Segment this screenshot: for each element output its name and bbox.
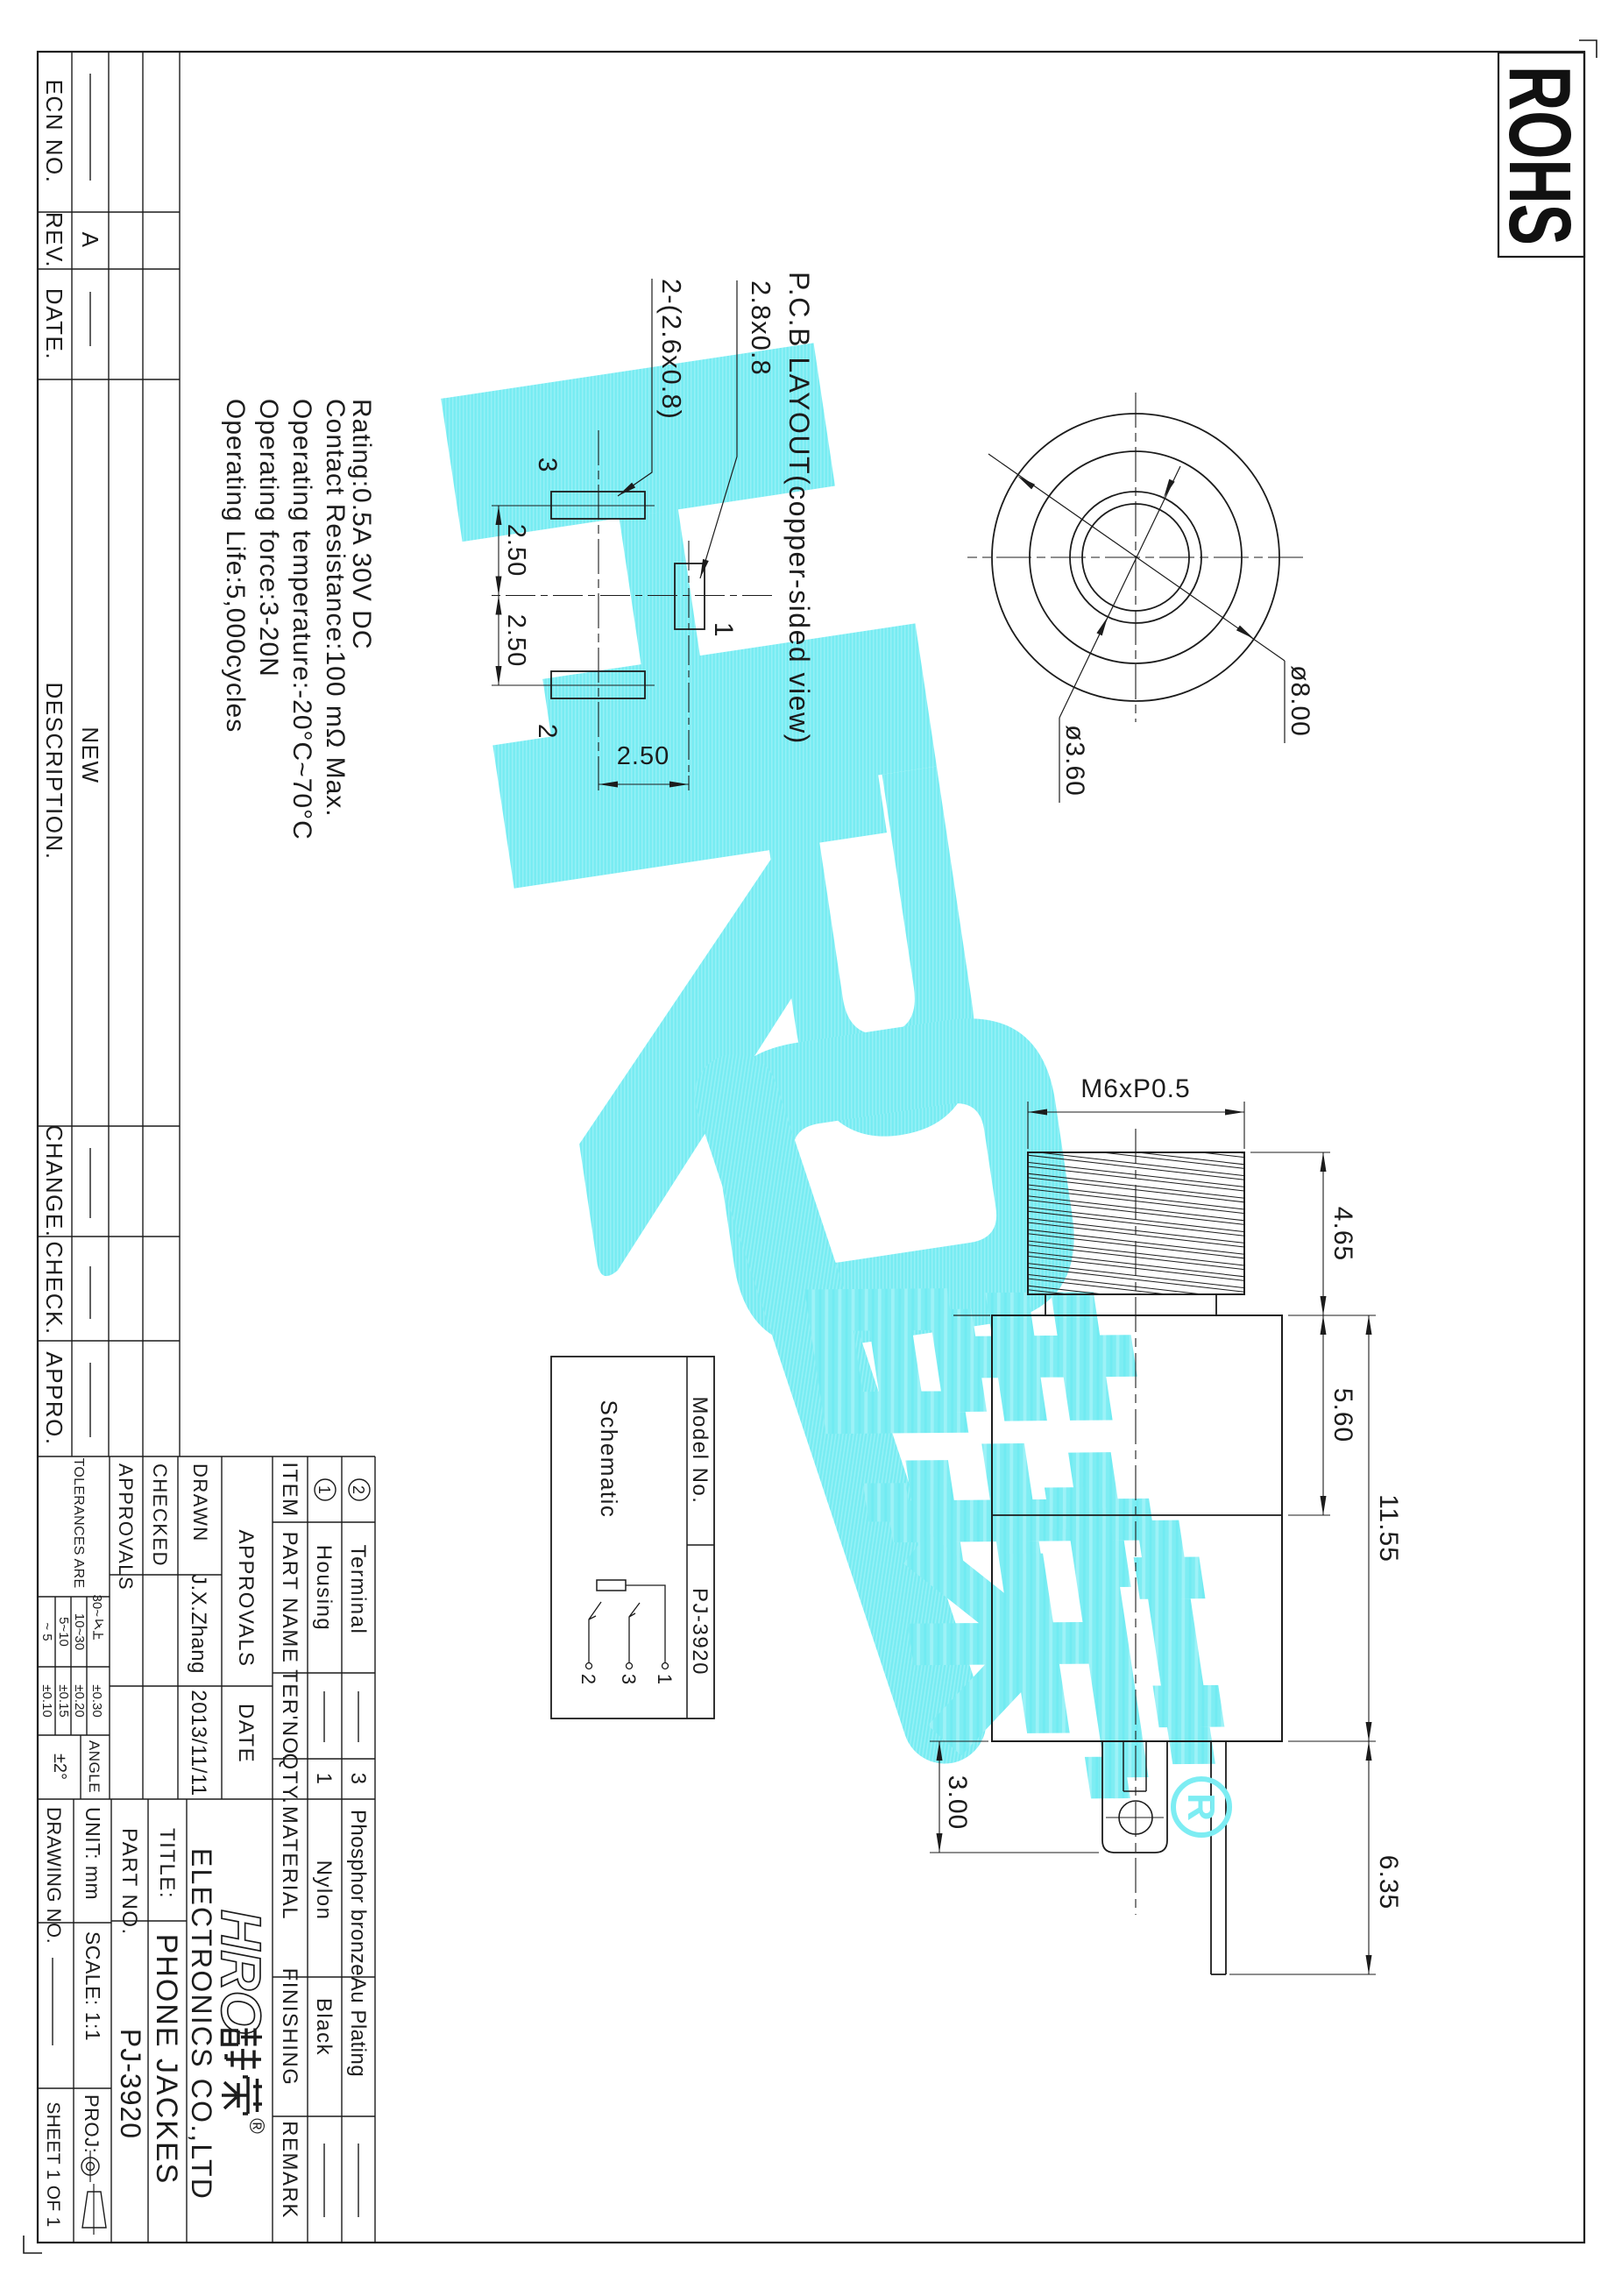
svg-text:P.C.B LAYOUT(copper-sided vi: P.C.B LAYOUT(copper-sided view): [783, 272, 815, 745]
svg-text:3: 3: [346, 1773, 370, 1786]
svg-text:REV.: REV.: [41, 212, 67, 268]
svg-text:3.00: 3.00: [943, 1775, 972, 1830]
svg-text:®: ®: [244, 2118, 268, 2134]
svg-text:SHEET 1 OF 1: SHEET 1 OF 1: [43, 2101, 63, 2227]
svg-text:ECN NO.: ECN NO.: [41, 80, 67, 184]
svg-text:5.60: 5.60: [1328, 1388, 1357, 1442]
svg-text:APPRO.: APPRO.: [41, 1351, 67, 1445]
svg-text:11.55: 11.55: [1374, 1494, 1403, 1563]
svg-text:Au Plating: Au Plating: [346, 1977, 370, 2077]
svg-text:PJ-3920: PJ-3920: [688, 1588, 712, 1676]
svg-text:TER'NO.: TER'NO.: [278, 1669, 301, 1762]
svg-text:PART NO.: PART NO.: [117, 1828, 141, 1936]
svg-text:DATE.: DATE.: [41, 288, 67, 360]
svg-text:2: 2: [533, 724, 562, 740]
svg-text:APPROVALS: APPROVALS: [234, 1529, 258, 1667]
svg-text:2-(2.6x0.8): 2-(2.6x0.8): [656, 279, 687, 420]
svg-text:10~30: 10~30: [72, 1613, 87, 1650]
svg-text:DESCRIPTION.: DESCRIPTION.: [41, 683, 67, 861]
svg-text:CHECK.: CHECK.: [41, 1241, 67, 1335]
svg-text:PHONE JACKES: PHONE JACKES: [150, 1934, 183, 2186]
svg-text:Contact Resistance:100 mΩ M: Contact Resistance:100 mΩ Max.: [321, 399, 350, 818]
svg-text:2.50: 2.50: [617, 742, 669, 770]
svg-text:2.50: 2.50: [502, 524, 530, 577]
svg-text:TITLE:: TITLE:: [155, 1828, 179, 1899]
svg-text:5~10: 5~10: [56, 1617, 71, 1647]
svg-text:Operating temperature:-20°C~7: Operating temperature:-20°C~70°C: [287, 399, 316, 840]
svg-text:30~: 30~: [89, 1595, 104, 1618]
svg-text:SCALE: 1:1: SCALE: 1:1: [81, 1931, 104, 2041]
svg-text:2: 2: [350, 1485, 367, 1494]
svg-text:±0.10: ±0.10: [39, 1684, 54, 1717]
svg-text:TOLERANCES ARE: TOLERANCES ARE: [71, 1458, 86, 1589]
svg-text:3: 3: [533, 457, 562, 473]
svg-text:DRAWN: DRAWN: [189, 1463, 211, 1542]
svg-text:Operating Life:5,000cycles: Operating Life:5,000cycles: [221, 399, 250, 733]
svg-text:Rating:0.5A 30V DC: Rating:0.5A 30V DC: [347, 399, 376, 650]
svg-text:±0.15: ±0.15: [56, 1684, 71, 1717]
svg-text:2: 2: [577, 1674, 599, 1684]
svg-text:Phosphor bronze: Phosphor bronze: [346, 1810, 370, 1976]
svg-text:M6xP0.5: M6xP0.5: [1080, 1074, 1190, 1103]
svg-text:MATERIAL: MATERIAL: [278, 1806, 301, 1920]
svg-text:PROJ:: PROJ:: [81, 2094, 103, 2153]
svg-text:Terminal: Terminal: [346, 1545, 370, 1635]
svg-text:REMARK: REMARK: [278, 2121, 301, 2219]
svg-text:NEW: NEW: [77, 726, 103, 783]
svg-text:Black: Black: [312, 1998, 336, 2056]
svg-text:1: 1: [315, 1485, 333, 1494]
svg-text:±0.30: ±0.30: [89, 1684, 104, 1717]
svg-text:±0.20: ±0.20: [72, 1684, 87, 1717]
svg-text:ITEM: ITEM: [278, 1462, 301, 1517]
svg-text:DATE: DATE: [234, 1704, 258, 1763]
svg-text:CHANGE.: CHANGE.: [41, 1125, 67, 1238]
svg-text:PART NAME: PART NAME: [278, 1532, 301, 1664]
svg-text:6.35: 6.35: [1374, 1855, 1403, 1910]
svg-text:Nylon: Nylon: [312, 1860, 336, 1921]
svg-text:PJ-3920: PJ-3920: [115, 2029, 146, 2139]
svg-text:2.8x0.8: 2.8x0.8: [746, 280, 776, 376]
svg-text:ROHS: ROHS: [1491, 66, 1589, 245]
svg-text:QTY.: QTY.: [278, 1754, 301, 1805]
svg-text:~ 5: ~ 5: [39, 1622, 54, 1641]
svg-text:ELECTRONICS CO.,LTD: ELECTRONICS CO.,LTD: [186, 1848, 217, 2200]
svg-text:ANGLE: ANGLE: [86, 1740, 103, 1793]
svg-text:UNIT: mm: UNIT: mm: [81, 1807, 104, 1900]
svg-text:2013/11/11: 2013/11/11: [187, 1690, 210, 1796]
svg-text:HRO: HRO: [209, 1910, 273, 2034]
svg-text:1: 1: [312, 1773, 336, 1786]
svg-text:Operating force:3-20N: Operating force:3-20N: [254, 399, 283, 677]
svg-text:Housing: Housing: [312, 1545, 336, 1632]
svg-text:ø8.00: ø8.00: [1286, 665, 1314, 737]
svg-text:DRAWING NO.: DRAWING NO.: [43, 1807, 65, 1944]
svg-text:±2°: ±2°: [50, 1754, 69, 1780]
svg-text:Schematic: Schematic: [596, 1400, 622, 1519]
svg-text:2.50: 2.50: [502, 614, 530, 667]
svg-text:ø3.60: ø3.60: [1060, 725, 1089, 797]
svg-text:1: 1: [709, 622, 738, 638]
svg-text:Model No.: Model No.: [688, 1397, 712, 1505]
svg-text:J.X.Zhang: J.X.Zhang: [187, 1574, 210, 1674]
svg-text:3: 3: [618, 1674, 640, 1684]
svg-text:4.65: 4.65: [1328, 1207, 1357, 1261]
svg-text:R: R: [1179, 1793, 1222, 1821]
svg-text:A: A: [77, 232, 103, 249]
svg-text:CHECKED: CHECKED: [149, 1463, 171, 1567]
svg-text:APPROVALS: APPROVALS: [115, 1463, 137, 1591]
svg-text:1: 1: [654, 1674, 676, 1684]
svg-text:FINISHING: FINISHING: [278, 1968, 301, 2087]
